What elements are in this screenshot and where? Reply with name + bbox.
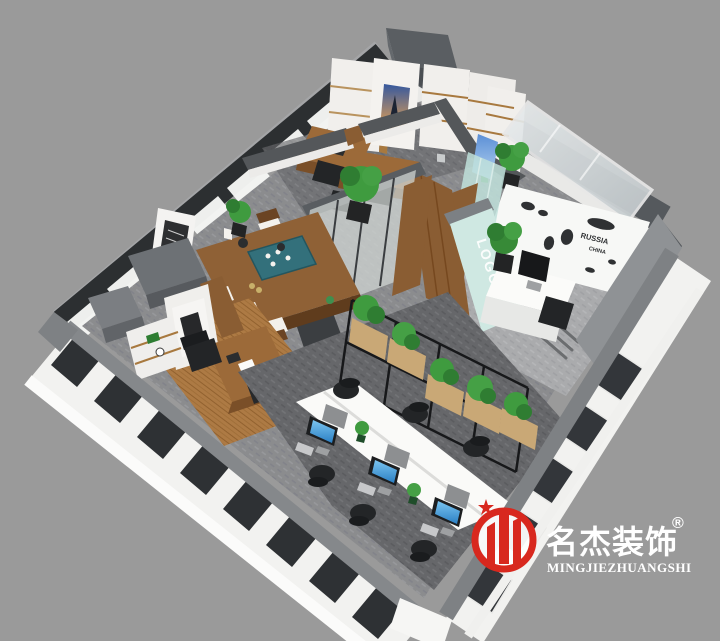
- office-3d-render: RUSSIA CHINA LOGO: [0, 0, 720, 641]
- emblem-bar-left: [487, 522, 495, 564]
- logo-english-text: MINGJIEZHUANGSHI: [547, 560, 692, 575]
- logo-chinese-text: 名杰装饰: [546, 523, 678, 561]
- isometric-office-scene: RUSSIA CHINA LOGO: [0, 0, 720, 641]
- teapot: [277, 243, 285, 251]
- clock: [156, 348, 164, 356]
- registered-mark: ®: [672, 515, 684, 532]
- emblem-bar-right: [513, 517, 521, 564]
- emblem-bar-middle: [499, 508, 509, 564]
